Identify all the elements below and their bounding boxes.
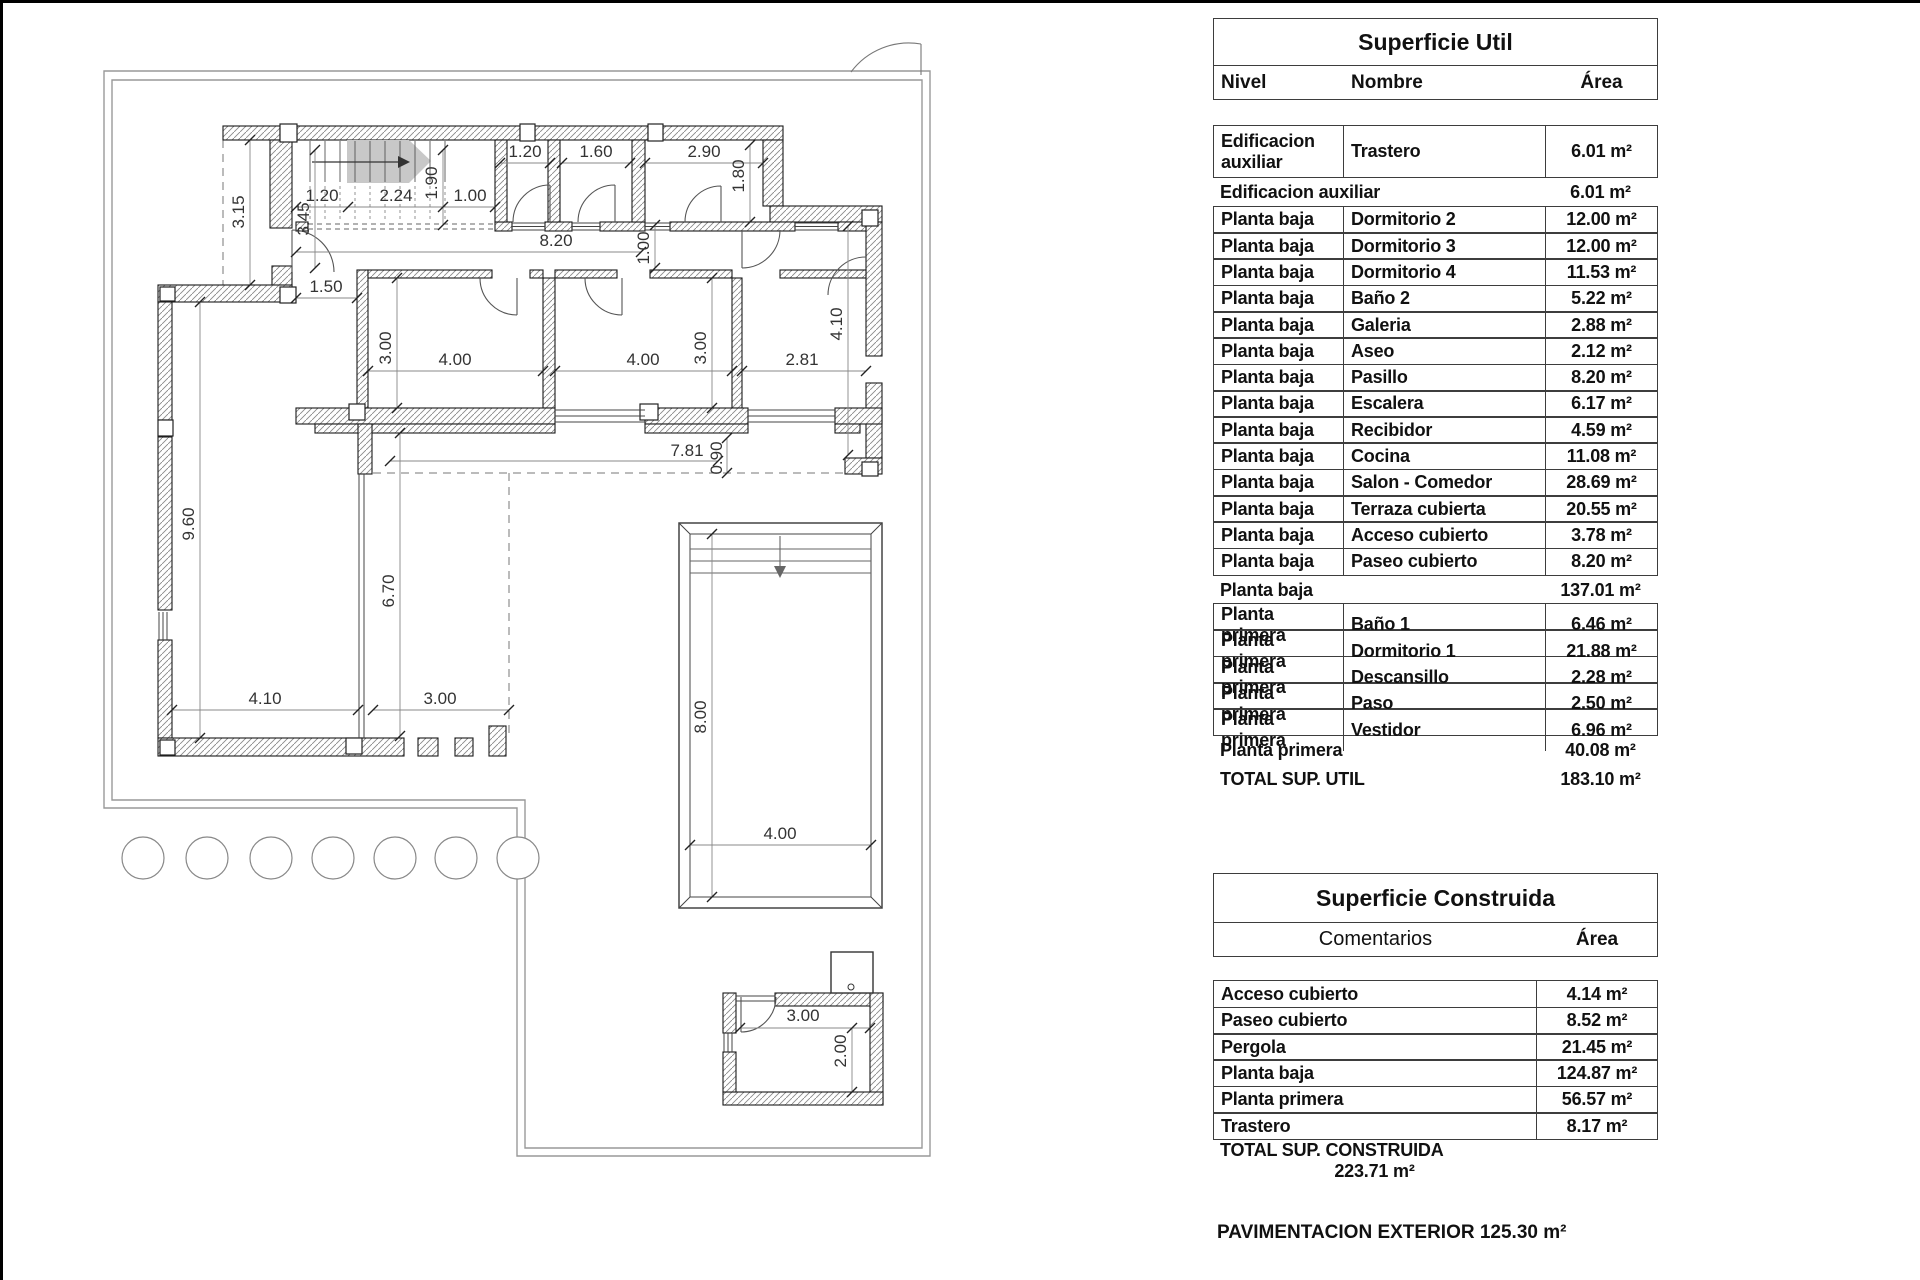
cell-nivel: Planta baja <box>1214 549 1344 575</box>
cell-area: 6.17 m² <box>1546 393 1657 414</box>
cell-area: 137.01 m² <box>1545 580 1656 601</box>
table-row: Planta primera Baño 1 6.46 m² <box>1213 603 1658 631</box>
cell-nivel: Planta primera <box>1213 740 1545 761</box>
cell-area: 21.88 m² <box>1546 641 1657 662</box>
superficie-util-header-block: Superficie Util Nivel Nombre Área <box>1213 18 1658 100</box>
table-row: Planta baja Dormitorio 4 11.53 m² <box>1213 258 1658 286</box>
cell-comentario: Trastero <box>1214 1113 1537 1139</box>
cell-area: 12.00 m² <box>1546 209 1657 230</box>
cell-area: 2.50 m² <box>1546 693 1657 714</box>
tree-row <box>122 837 539 879</box>
dimension-label: 2.90 <box>687 142 720 161</box>
cell-nombre: Trastero <box>1344 126 1546 177</box>
dimension-label: 4.10 <box>827 307 846 340</box>
entrance-gate <box>851 43 921 75</box>
cell-nombre: Cocina <box>1344 443 1546 469</box>
col-header-comentarios: Comentarios <box>1214 928 1537 951</box>
superficie-util-column-headers: Nivel Nombre Área <box>1214 66 1657 99</box>
cell-comentario: Planta primera <box>1214 1087 1537 1113</box>
table-row: Planta baja Recibidor 4.59 m² <box>1213 416 1658 444</box>
cell-nivel: Edificacion auxiliar <box>1214 126 1344 177</box>
cell-nivel: Planta baja <box>1214 365 1344 391</box>
cell-area: 183.10 m² <box>1545 769 1656 790</box>
page: 3.153.451.202.241.901.001.201.602.901.80… <box>0 0 1920 1280</box>
cell-area: 2.28 m² <box>1546 667 1657 688</box>
dimension-label: 1.20 <box>305 186 338 205</box>
table-row: Trastero 8.17 m² <box>1213 1112 1658 1140</box>
cell-nombre: Dormitorio 3 <box>1344 233 1546 259</box>
cell-nivel: Edificacion auxiliar <box>1213 182 1545 203</box>
cell-nombre: Acceso cubierto <box>1344 522 1546 548</box>
superficie-util-rows: Edificacion auxiliar Trastero 6.01 m² Ed… <box>1213 125 1658 794</box>
cell-comentario: Acceso cubierto <box>1214 981 1537 1007</box>
dimension-label: 1.00 <box>453 186 486 205</box>
table-row: Planta baja Galeria 2.88 m² <box>1213 311 1658 339</box>
cell-area: 8.17 m² <box>1537 1116 1657 1137</box>
col-header-area: Área <box>1537 929 1657 951</box>
cell-nivel: Planta baja <box>1214 286 1344 312</box>
table-row: TOTAL SUP. UTIL 183.10 m² <box>1213 765 1658 794</box>
cell-area: 8.20 m² <box>1546 551 1657 572</box>
cell-area: 2.88 m² <box>1546 315 1657 336</box>
outbuilding-fixture <box>831 952 873 993</box>
table-row: Planta baja Dormitorio 3 12.00 m² <box>1213 232 1658 260</box>
dimension-label: 7.81 <box>670 441 703 460</box>
col-header-area: Área <box>1546 72 1657 94</box>
cell-area: 4.14 m² <box>1537 984 1657 1005</box>
cell-nivel: Planta baja <box>1213 580 1545 601</box>
cell-area: 28.69 m² <box>1546 472 1657 493</box>
dimension-label: 0.90 <box>707 441 726 474</box>
cell-area: 124.87 m² <box>1537 1063 1657 1084</box>
table-row: Planta primera 40.08 m² <box>1213 736 1658 765</box>
cell-area: 223.71 m² <box>1213 1161 1536 1182</box>
table-row: Acceso cubierto 4.14 m² <box>1213 980 1658 1008</box>
table-row: TOTAL SUP. CONSTRUIDA 223.71 m² <box>1213 1140 1658 1169</box>
dimension-label: 1.00 <box>634 231 653 264</box>
col-header-nivel: Nivel <box>1214 72 1344 94</box>
cell-area: 8.20 m² <box>1546 367 1657 388</box>
cell-area: 20.55 m² <box>1546 499 1657 520</box>
cell-nombre: Recibidor <box>1344 417 1546 443</box>
dimension-label: 3.00 <box>786 1006 819 1025</box>
dimension-label: 3.00 <box>423 689 456 708</box>
dimension-label: 8.00 <box>691 700 710 733</box>
dimension-label: 1.60 <box>579 142 612 161</box>
table-row: Planta baja Dormitorio 2 12.00 m² <box>1213 206 1658 234</box>
table-row: Planta baja Escalera 6.17 m² <box>1213 390 1658 418</box>
table-row: Planta baja Salon - Comedor 28.69 m² <box>1213 469 1658 497</box>
table-row: Planta baja Paseo cubierto 8.20 m² <box>1213 548 1658 576</box>
table-row: Edificacion auxiliar Trastero 6.01 m² <box>1213 125 1658 178</box>
table-row: Edificacion auxiliar 6.01 m² <box>1213 178 1658 207</box>
superficie-util-table: Superficie Util Nivel Nombre Área Edific… <box>1213 18 1658 794</box>
cell-nombre: Galeria <box>1344 312 1546 338</box>
cell-nombre: Dormitorio 2 <box>1344 207 1546 233</box>
dimension-label: 2.24 <box>379 186 412 205</box>
cell-nombre: Terraza cubierta <box>1344 496 1546 522</box>
cell-comentario: Planta baja <box>1214 1060 1537 1086</box>
table-row: Planta primera 56.57 m² <box>1213 1086 1658 1114</box>
cell-nombre: Paseo cubierto <box>1344 549 1546 575</box>
table-row: Planta baja 137.01 m² <box>1213 576 1658 605</box>
dimension-label: 3.00 <box>691 331 710 364</box>
cell-area: 5.22 m² <box>1546 288 1657 309</box>
cell-area: 6.01 m² <box>1546 141 1657 162</box>
cell-area: 12.00 m² <box>1546 236 1657 257</box>
superficie-construida-table: Superficie Construida Comentarios Área A… <box>1213 873 1658 1169</box>
table-row: Planta baja Pasillo 8.20 m² <box>1213 364 1658 392</box>
table-row: Planta baja Aseo 2.12 m² <box>1213 337 1658 365</box>
dimension-label: 1.80 <box>729 159 748 192</box>
cell-nivel: Planta baja <box>1214 312 1344 338</box>
cell-nivel: Planta baja <box>1214 496 1344 522</box>
dimension-label: 3.45 <box>294 202 313 235</box>
cell-area: 21.45 m² <box>1537 1037 1657 1058</box>
understair-sill <box>308 224 495 229</box>
cell-nombre: Pasillo <box>1344 365 1546 391</box>
dimension-label: 1.90 <box>422 166 441 199</box>
dimension-label: 2.00 <box>831 1034 850 1067</box>
cell-nivel: Planta baja <box>1214 338 1344 364</box>
cell-area: 40.08 m² <box>1545 740 1656 761</box>
dimension-label: 1.20 <box>508 142 541 161</box>
col-header-nombre: Nombre <box>1344 72 1546 94</box>
dimension-label: 2.81 <box>785 350 818 369</box>
cell-nivel: Planta baja <box>1214 391 1344 417</box>
cell-comentario: Paseo cubierto <box>1214 1008 1537 1034</box>
superficie-construida-rows: Acceso cubierto 4.14 m² Paseo cubierto 8… <box>1213 980 1658 1169</box>
cell-nombre: Escalera <box>1344 391 1546 417</box>
cell-nivel: Planta baja <box>1214 417 1344 443</box>
cell-nivel: Planta baja <box>1214 233 1344 259</box>
cell-area: 6.01 m² <box>1545 182 1656 203</box>
cell-area: 3.78 m² <box>1546 525 1657 546</box>
dimension-label: 4.00 <box>626 350 659 369</box>
cell-nivel: Planta baja <box>1214 470 1344 496</box>
cell-comentario: Pergola <box>1214 1034 1537 1060</box>
cell-nombre: Baño 2 <box>1344 286 1546 312</box>
dimension-label: 3.15 <box>229 195 248 228</box>
cell-nombre: Dormitorio 4 <box>1344 259 1546 285</box>
cell-nombre: Aseo <box>1344 338 1546 364</box>
dimension-label: 1.50 <box>309 277 342 296</box>
cell-nivel: Planta baja <box>1214 443 1344 469</box>
cell-area: 4.59 m² <box>1546 420 1657 441</box>
dimension-label: 6.70 <box>379 574 398 607</box>
superficie-construida-column-headers: Comentarios Área <box>1214 923 1657 956</box>
cell-nivel: TOTAL SUP. UTIL <box>1213 769 1545 790</box>
dimension-label: 8.20 <box>539 231 572 250</box>
cell-area: 6.96 m² <box>1546 720 1657 741</box>
table-row: Planta baja 124.87 m² <box>1213 1059 1658 1087</box>
cell-comentario: TOTAL SUP. CONSTRUIDA <box>1213 1140 1656 1161</box>
cell-nivel: Planta baja <box>1214 259 1344 285</box>
superficie-construida-header-block: Superficie Construida Comentarios Área <box>1213 873 1658 957</box>
cell-area: 11.53 m² <box>1546 262 1657 283</box>
dimension-label: 3.00 <box>376 331 395 364</box>
dimension-label: 4.10 <box>248 689 281 708</box>
dimension-label: 4.00 <box>438 350 471 369</box>
cell-area: 2.12 m² <box>1546 341 1657 362</box>
dimension-label: 4.00 <box>763 824 796 843</box>
cell-nombre: Salon - Comedor <box>1344 470 1546 496</box>
cell-nivel: Planta baja <box>1214 207 1344 233</box>
cell-area: 6.46 m² <box>1546 614 1657 635</box>
superficie-construida-title: Superficie Construida <box>1214 874 1657 923</box>
table-row: Planta baja Acceso cubierto 3.78 m² <box>1213 521 1658 549</box>
cell-nivel: Planta baja <box>1214 522 1344 548</box>
dimension-label: 9.60 <box>179 507 198 540</box>
cell-area: 56.57 m² <box>1537 1089 1657 1110</box>
table-row: Planta baja Cocina 11.08 m² <box>1213 442 1658 470</box>
table-row: Planta baja Terraza cubierta 20.55 m² <box>1213 495 1658 523</box>
table-row: Pergola 21.45 m² <box>1213 1033 1658 1061</box>
table-row: Paseo cubierto 8.52 m² <box>1213 1007 1658 1035</box>
superficie-util-title: Superficie Util <box>1214 19 1657 66</box>
cell-area: 11.08 m² <box>1546 446 1657 467</box>
pavimentacion-footnote: PAVIMENTACION EXTERIOR 125.30 m² <box>1217 1222 1566 1244</box>
cell-area: 8.52 m² <box>1537 1010 1657 1031</box>
table-row: Planta baja Baño 2 5.22 m² <box>1213 285 1658 313</box>
